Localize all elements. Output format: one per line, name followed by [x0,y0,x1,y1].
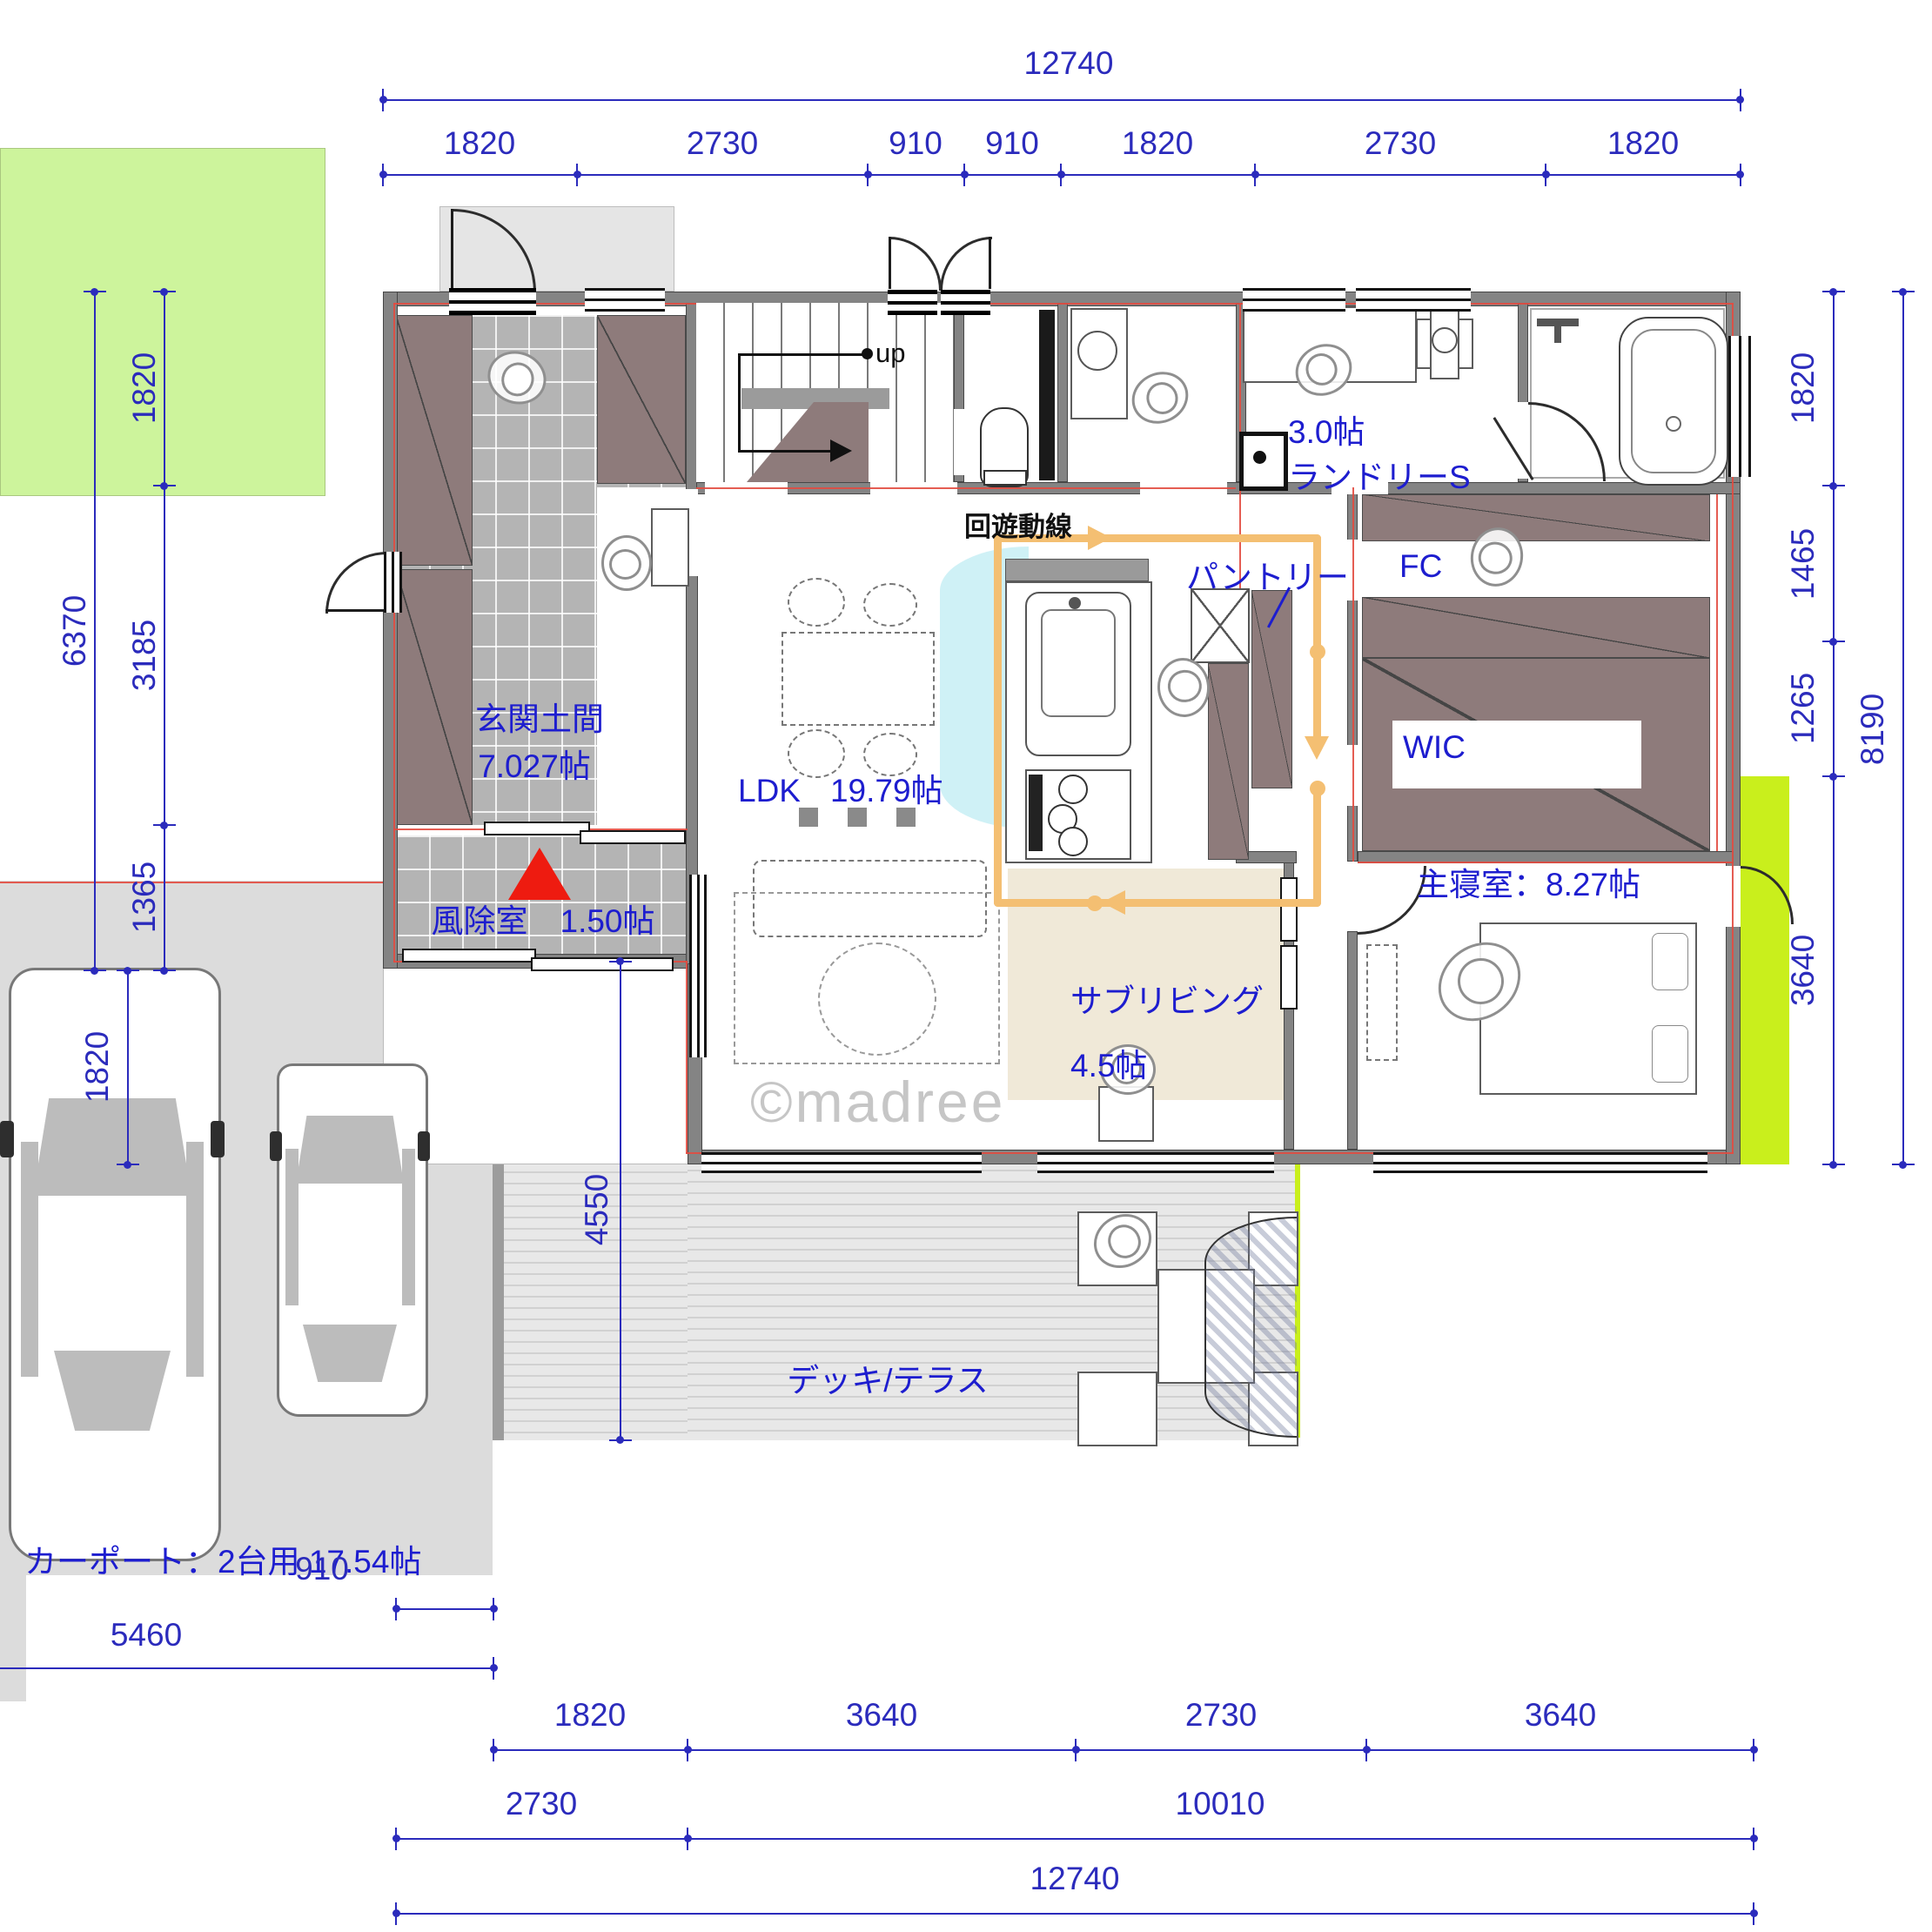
burner-icon [1058,827,1088,856]
subliving-slide-door [1280,877,1298,942]
dim-dot [616,957,624,965]
dim-line-left-outer [94,292,96,970]
stair-arrow-dot [862,348,873,359]
entrance-door-frame [449,288,536,315]
dim-carport-width: 5460 [111,1617,182,1654]
window-laundry-north [1243,288,1345,312]
dim-dot [91,288,98,296]
genkan-closet-left-lower [396,569,473,825]
toilet-tank [983,470,1027,486]
fujo-label: 風除室 1.50帖 [431,895,654,942]
dim-dot [1736,96,1744,104]
dim-dot [1829,482,1837,490]
fujo-slide-door [484,822,590,835]
dim-dot [91,967,98,975]
car-windshield [33,1098,191,1196]
wall-west [383,292,398,969]
dim-bottom-seg: 3640 [846,1697,917,1734]
subliving-label: サブリビング [1070,975,1264,1022]
back-door-leaf [889,237,891,289]
back-door-frame [941,290,990,315]
stair-arrow-icon [830,439,852,462]
dim-line-bottom-row2 [396,1838,1754,1840]
garden-green-area [0,148,325,496]
dim-line-deck [620,962,621,1440]
dim-dot [1542,171,1550,178]
washing-machine-drum [1253,451,1266,464]
service-door-frame [384,552,402,613]
dining-chair-icon [788,578,845,627]
dim-offset: 910 [295,1551,349,1587]
watermark: ©madree [750,1069,1005,1135]
dim-dot [616,1436,624,1444]
service-door-leaf [325,609,386,612]
dim-dot [684,1835,692,1842]
window-ldk-south [701,1152,982,1173]
laundry-label: ランドリーS [1288,451,1471,498]
bathtub-drain [1666,416,1681,432]
dim-dot [684,1746,692,1754]
washbasin-icon [1077,331,1117,371]
carport-label: カーポート：2台用 17.54帖 [24,1535,421,1582]
wall-bedroom-west [1347,931,1358,1150]
stair-arrow-line [738,450,834,453]
dim-right-seg: 1465 [1785,528,1821,600]
dim-dot [160,967,168,975]
utility-sink-drain [1432,327,1458,353]
deck-label: デッキ/テラス [787,1354,989,1401]
ldk-label: LDK19.79帖 [738,764,943,811]
dim-left-seg: 1820 [126,352,163,424]
dim-bottom-seg: 3640 [1525,1697,1596,1734]
dim-dot [490,1664,498,1672]
car-rear-window [303,1325,397,1382]
car-mirror [211,1121,225,1157]
dim-dot [1057,171,1065,178]
dim-top-seg: 1820 [1607,125,1679,162]
back-door-leaf [989,237,991,289]
floor-plan: up [0,0,1932,1932]
window-genkan-north [585,288,665,312]
entrance-marker-icon [508,848,571,900]
genkan-closet-right [597,315,686,484]
dim-dot [1072,1746,1080,1754]
kitchen-sink-bowl [1041,609,1116,717]
back-door-arc [889,237,942,291]
dim-left-outer: 6370 [57,595,93,667]
bedroom-wardrobe [1366,944,1398,1061]
dim-line-bottom-total [396,1913,1754,1915]
dim-dot [1251,171,1259,178]
wall-toilet-east [1057,303,1068,482]
wic-label: WIC [1403,729,1466,766]
person-icon [601,535,652,591]
genkan-label: 玄関土間 [475,693,604,740]
entrance-door-leaf [451,209,453,292]
window-subliving-south [1037,1152,1274,1173]
dim-right-seg: 1265 [1785,673,1821,744]
burner-icon [1058,775,1088,804]
subliving-slide-door [1280,945,1298,1010]
dim-top-seg: 1820 [1122,125,1193,162]
fujo-entry-slide [402,949,536,963]
circulation-line [1313,790,1321,907]
dim-dot [1736,171,1744,178]
car-mirror [270,1131,282,1161]
laundry-area-label: 3.0帖 [1288,406,1365,453]
stove-grill [1029,775,1043,851]
dim-bottom-seg: 1820 [554,1697,626,1734]
genkan-closet-left-upper [396,315,473,566]
grid-line [686,961,688,1154]
fc-shelf-south [1362,597,1710,658]
pantry-label: パントリー [1186,551,1349,598]
fc-label: FC [1399,548,1442,585]
car-mirror [0,1121,14,1157]
grid-line [393,303,395,963]
pantry-shelf [1208,663,1249,860]
car-window [186,1142,204,1377]
lawn-strip-east [1741,776,1789,1164]
shower-icon-stem [1554,319,1561,343]
dim-bottom-total: 12740 [1030,1861,1120,1897]
dim-right-outer: 8190 [1855,694,1891,765]
pillow-icon [1652,933,1688,990]
dim-dot [160,482,168,490]
car-mirror [418,1131,430,1161]
dim-dot [124,967,131,975]
dim-line-left-carport [127,970,129,1164]
dim-dot [160,822,168,829]
pillow-icon [1652,1025,1688,1083]
dim-line-left-inner [164,292,165,970]
dim-line-bottom-row1 [493,1749,1754,1751]
back-door-frame [888,290,937,315]
dim-dot [1829,288,1837,296]
circulation-dot [1310,781,1325,796]
bathtub-inner [1631,329,1716,473]
dim-left-seg: 1365 [126,862,163,933]
dim-line-right-outer [1902,292,1904,1164]
dim-dot [864,171,872,178]
grid-line [1352,487,1354,862]
dim-dot [1363,1746,1371,1754]
circulation-arrow-icon [1305,736,1329,760]
circulation-arrow-icon [1102,890,1125,915]
car-window [402,1149,415,1305]
dim-dot [1750,1909,1758,1917]
dim-bottom-seg2: 2730 [506,1786,577,1822]
dim-dot [124,1161,131,1169]
fujo-entry-slide [531,957,674,971]
dim-dot [160,288,168,296]
genkan-area-label: 7.027帖 [478,740,591,787]
dim-dot [379,171,387,178]
dim-right-seg: 1820 [1785,352,1821,424]
dim-line-carport-width [0,1667,493,1669]
circulation-dot [1310,644,1325,660]
fc-shelf-north [1362,494,1710,541]
dim-top-seg: 910 [985,125,1039,162]
circulation-line [994,534,1002,907]
carport-area-edge [0,1575,26,1701]
dim-deck-height: 4550 [579,1174,615,1245]
car-windshield [296,1116,404,1184]
dim-bottom-seg2: 10010 [1176,1786,1265,1822]
service-door-arc [325,552,387,614]
window-bedroom-south [1373,1152,1707,1173]
kitchen-counter-top [1005,559,1149,581]
circulation-arrow-icon [1088,526,1111,550]
dim-dot [961,171,969,178]
dim-dot [392,1605,400,1613]
dining-chair-icon [863,583,917,627]
window-laundry-north2 [1356,288,1471,312]
deck-chair-icon [1077,1372,1157,1446]
dim-top-seg: 2730 [687,125,758,162]
ldk-area: 19.79帖 [830,773,943,808]
fujo-slide-door [580,830,686,844]
car-window [21,1142,38,1377]
car-window [285,1149,299,1305]
dim-left-seg: 3185 [126,620,163,691]
dim-top-seg: 1820 [444,125,515,162]
dim-bottom-seg: 2730 [1185,1697,1257,1734]
pantry-duct-box [1191,588,1250,663]
dim-line-top-total [383,99,1741,101]
toilet-shelf [1039,310,1055,480]
circulation-label: 回遊動線 [964,505,1072,544]
dim-right-seg: 3640 [1785,935,1821,1006]
grid-line [1716,494,1718,851]
dim-top-seg: 910 [889,125,943,162]
floor-plan-page: { "watermark": "©madree", "annotations":… [0,0,1932,1932]
round-table-icon [818,943,936,1056]
dim-dot [490,1605,498,1613]
genkan-desk [651,508,689,587]
ldk-name: LDK [738,773,801,808]
planting-icon [1204,1217,1297,1438]
dim-dot [1750,1835,1758,1842]
window-ldk-west [689,875,707,1057]
dim-dot [392,1909,400,1917]
dim-left-carport: 1820 [79,1031,116,1103]
grid-line [696,487,1236,489]
dim-dot [1750,1746,1758,1754]
dim-line-offset [396,1608,493,1610]
dim-dot [574,171,581,178]
opening-bedroom-door [1347,866,1358,931]
dim-dot [1829,638,1837,646]
dim-dot [1829,773,1837,781]
dim-dot [392,1835,400,1842]
dim-top-seg: 2730 [1365,125,1436,162]
stairs-up-label: up [875,338,905,369]
back-door-arc [940,237,992,291]
kitchen-faucet [1069,597,1081,609]
circulation-dot [1087,896,1103,911]
bedroom-label: 主寝室：8.27帖 [1417,858,1640,905]
dim-dot [490,1746,498,1754]
window-bath-east [1728,336,1751,477]
dim-dot [379,96,387,104]
circulation-line [994,899,1321,907]
dim-dot [1899,288,1907,296]
stair-arrow-line [738,353,741,453]
dim-dot [1899,1161,1907,1169]
dim-dot [1829,1161,1837,1169]
subliving-area-label: 4.5帖 [1070,1039,1147,1086]
dim-line-right-inner [1833,292,1835,1164]
stair-arrow-line [738,353,869,356]
dim-top-total: 12740 [1024,45,1114,82]
dining-table-icon [782,632,935,726]
opening-toilet-door [954,409,964,475]
